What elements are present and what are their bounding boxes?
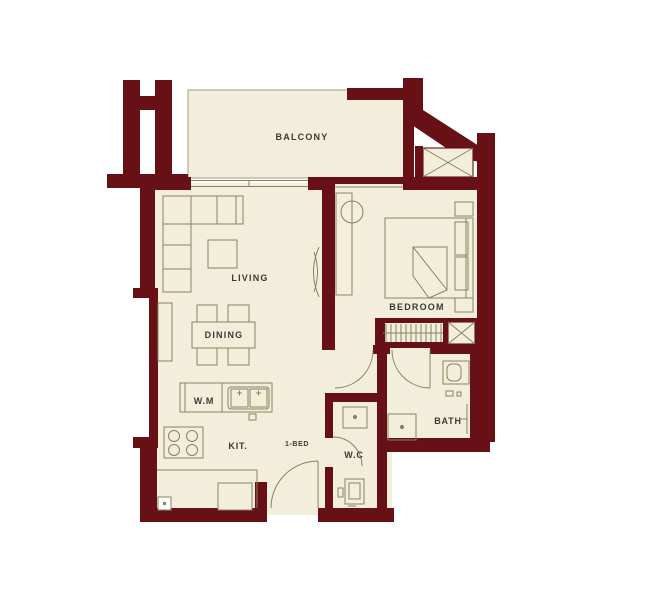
wall-wc-east: [377, 345, 387, 515]
wall-wc-west-upper: [325, 400, 333, 438]
bath-label: BATH: [434, 416, 462, 426]
wall-north-band: [310, 177, 405, 184]
dining-label: DINING: [205, 330, 244, 340]
wall-north-right: [403, 177, 480, 190]
kitchen-label: KIT.: [228, 441, 247, 451]
dishwasher: [218, 483, 252, 510]
bedroom-label: BEDROOM: [389, 302, 444, 312]
wall-column-right: [155, 80, 172, 188]
shower-drain-icon: [400, 425, 403, 428]
wall-wc-north: [325, 393, 380, 402]
wall-shaft-left: [415, 146, 423, 178]
balcony-label: BALCONY: [276, 132, 329, 142]
basin-drain-icon: [353, 415, 356, 418]
unit-type-label: 1-BED: [285, 441, 309, 448]
living-label: LIVING: [231, 273, 268, 283]
wall-west-flange-top: [133, 288, 158, 298]
wardrobe: [375, 318, 445, 348]
wall-wc-west-lower: [325, 467, 333, 512]
floor-plan: BALCONY LIVING DINING BEDROOM BATH W.C K…: [0, 0, 660, 593]
wardrobe-top-rail: [379, 318, 445, 323]
wall-west-upper: [140, 188, 155, 298]
wall-column-tie: [137, 96, 157, 110]
living-kitchen-floor: [155, 183, 330, 515]
wall-north-left: [155, 177, 191, 190]
wall-living-bedroom: [322, 183, 335, 350]
step-mark: [163, 502, 165, 504]
washer-label: W.M: [194, 396, 214, 406]
wall-east-bath: [470, 347, 495, 442]
wc-label: W.C: [344, 450, 363, 460]
wall-balcony-top: [347, 88, 407, 100]
wardrobe-bottom-rail: [379, 342, 445, 348]
wall-west-thin: [149, 298, 158, 440]
wall-column-left: [123, 80, 140, 176]
floor-plan-drawing: BALCONY LIVING DINING BEDROOM BATH W.C K…: [0, 0, 660, 593]
